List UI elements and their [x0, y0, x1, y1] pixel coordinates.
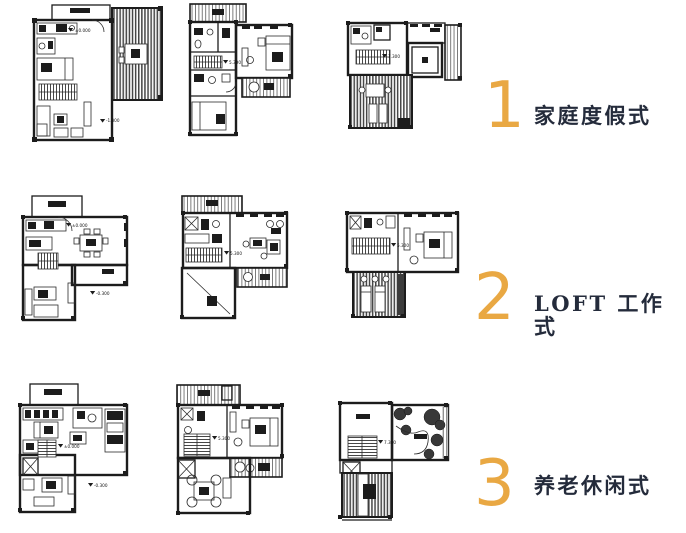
bathroom	[185, 217, 222, 243]
closet	[23, 408, 63, 420]
deck-terrace	[342, 473, 392, 517]
bed	[258, 36, 290, 70]
svg-text:-0.300: -0.300	[96, 291, 110, 296]
bathroom	[350, 216, 395, 229]
level-marker: 5.300	[224, 251, 242, 256]
floor-plan-scheme2-level3: 5.300	[344, 206, 462, 332]
kitchen	[26, 220, 66, 231]
stairs	[184, 434, 210, 456]
floor-plan-scheme3-level1: ±0.000 -0.300	[14, 382, 154, 530]
stairs	[194, 56, 222, 68]
svg-text:±0.000: ±0.000	[75, 28, 91, 33]
stairs	[39, 84, 77, 100]
bed	[34, 422, 58, 438]
svg-text:-0.300: -0.300	[94, 483, 108, 488]
tree-icon	[435, 420, 445, 430]
bathroom	[37, 38, 55, 54]
bathroom	[351, 25, 390, 44]
bed	[404, 228, 452, 264]
office-desks	[243, 221, 284, 260]
elevator	[23, 458, 38, 475]
scheme-1-title: 家庭度假式	[534, 104, 652, 127]
stairs	[38, 440, 56, 457]
dining-table	[74, 229, 108, 257]
stairs	[348, 436, 377, 458]
floor-plan-scheme3-level2: 5.300	[170, 382, 310, 530]
svg-text:5.300: 5.300	[218, 436, 230, 441]
scheme-3-title: 养老休闲式	[534, 474, 652, 497]
stairs	[352, 238, 390, 254]
void-room	[182, 268, 235, 318]
scheme-2-number: 2	[474, 266, 515, 330]
lounge-chair	[361, 286, 371, 312]
bed	[37, 58, 73, 80]
door-swing	[92, 20, 104, 32]
scheme-1-number: 1	[484, 74, 525, 138]
svg-text:-1.300: -1.300	[106, 118, 120, 123]
bathroom	[194, 74, 230, 84]
dining-table	[187, 475, 221, 507]
door-swing	[58, 217, 72, 231]
floor-plan-scheme1-roof: 7.300	[338, 12, 464, 142]
deck-terrace	[350, 75, 412, 128]
living-room	[37, 102, 91, 137]
level-marker: -1.300	[100, 118, 120, 123]
level-marker: 7.300	[378, 440, 396, 445]
level-marker: -0.300	[90, 291, 110, 296]
svg-text:7.300: 7.300	[384, 440, 396, 445]
svg-text:5.300: 5.300	[230, 251, 242, 256]
floor-plan-scheme1-level2: 5.300	[178, 2, 308, 137]
scheme-3-number: 3	[474, 452, 515, 516]
floor-plan-sheet: ±0.000 -1.300	[0, 0, 686, 533]
level-marker: 5.300	[212, 436, 230, 441]
svg-text:7.300: 7.300	[388, 54, 400, 59]
svg-text:±0.000: ±0.000	[72, 223, 88, 228]
deck-terrace	[353, 272, 405, 317]
svg-text:5.300: 5.300	[229, 60, 241, 65]
bed	[192, 102, 226, 130]
floor-plan-scheme3-roof: 7.300	[334, 392, 462, 532]
svg-text:5.300: 5.300	[397, 243, 409, 248]
tree-icon	[424, 449, 434, 459]
level-marker: -0.300	[88, 483, 108, 488]
side-terrace	[445, 25, 461, 80]
roof-room	[408, 43, 442, 77]
level-marker: 5.300	[223, 60, 241, 65]
bed	[230, 412, 278, 446]
bathroom	[181, 408, 205, 434]
svg-text:±0.000: ±0.000	[64, 444, 80, 449]
roof-garden	[392, 405, 448, 460]
kitchen	[105, 409, 125, 452]
lounge-chair	[379, 104, 387, 123]
floor-plan-scheme2-level2: 5.300	[170, 194, 310, 334]
tree-icon	[431, 434, 443, 446]
level-marker: 5.300	[391, 243, 409, 248]
scheme-2-title: LOFT 工作式	[534, 292, 686, 338]
lounge-chair	[369, 104, 377, 123]
lounge	[25, 283, 75, 317]
bathroom	[194, 28, 230, 48]
lounge	[23, 476, 75, 506]
stairs	[186, 248, 222, 262]
level-marker: ±0.000	[66, 223, 88, 228]
stairs	[38, 253, 58, 269]
level-marker: ±0.000	[58, 444, 80, 449]
floor-plan-scheme2-level1: ±0.000 -0.300	[14, 193, 154, 337]
tree-icon	[404, 407, 412, 415]
floor-plan-scheme1-level1: ±0.000 -1.300	[14, 2, 164, 142]
lounge-chair	[375, 286, 385, 312]
door-swing	[226, 82, 236, 92]
deck-terrace	[112, 8, 162, 100]
bathroom	[73, 408, 102, 428]
deck-table	[366, 84, 384, 97]
